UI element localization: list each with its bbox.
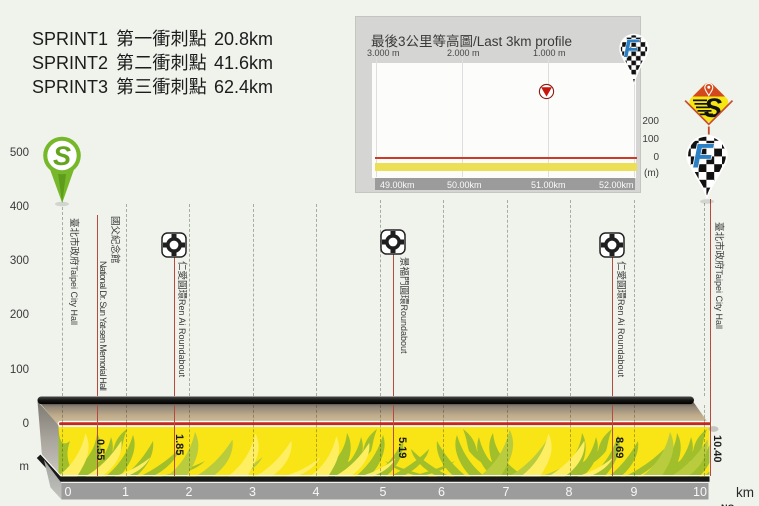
svg-text:F: F bbox=[624, 35, 640, 63]
svg-text:S: S bbox=[704, 93, 722, 123]
svg-text:S: S bbox=[53, 141, 71, 171]
svg-text:F: F bbox=[693, 138, 715, 176]
